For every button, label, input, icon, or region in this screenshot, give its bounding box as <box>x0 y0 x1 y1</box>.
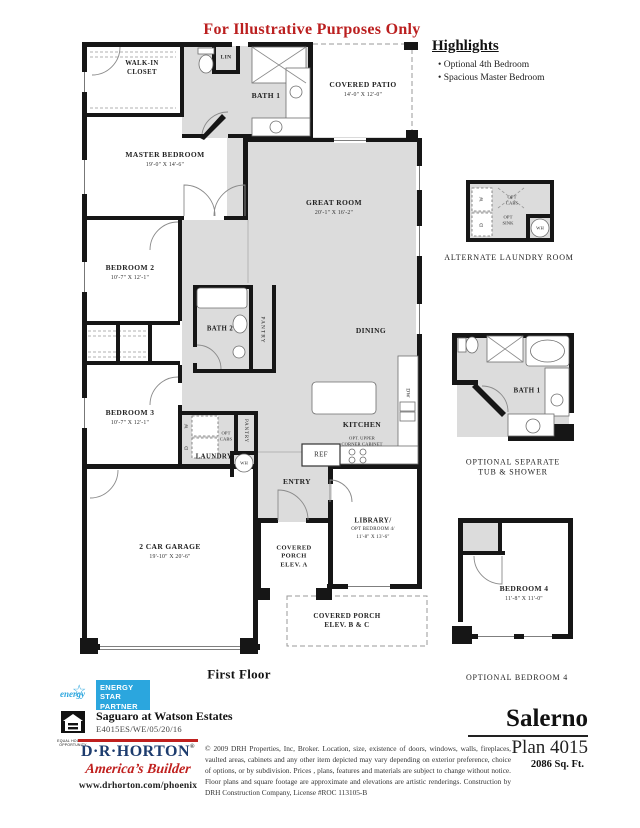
alt-laundry-dryer-label: D <box>480 223 486 227</box>
room-label-master-bedroom: MASTER BEDROOM <box>125 150 204 160</box>
room-label-bath-2: BATH 2 <box>207 326 233 335</box>
alt-laundry-washer-label: W <box>480 197 486 202</box>
opt-bedroom4-dims: 11'-8" X 11'-0" <box>505 596 543 604</box>
plan-identity: Salerno Plan 4015 2086 Sq. Ft. <box>468 705 588 770</box>
room-dims-garage: 19'-10" X 20'-6" <box>149 554 190 562</box>
floor-plan-sheet: For Illustrative Purposes Only Highlight… <box>0 0 640 828</box>
drhorton-logo: D·R·HORTON® America’s Builder www.drhort… <box>78 739 198 791</box>
room-dims-bedroom-2: 10'-7" X 12'-1" <box>111 275 149 283</box>
alt-laundry-opt-cabs-label: OPT CABS <box>506 195 518 206</box>
opt-bedroom4-room-label: BEDROOM 4 <box>500 584 549 594</box>
room-label-library-opt: OPT BEDROOM 4/ <box>351 527 395 533</box>
room-dims-master-bedroom: 19'-0" X 14'-6" <box>146 162 184 170</box>
community-name: Saguaro at Watson Estates <box>96 709 233 724</box>
alt-laundry-opt-sink-label: OPT SINK <box>502 215 513 226</box>
registered-mark: ® <box>190 744 195 750</box>
energy-star-line: STAR <box>100 692 150 701</box>
dryer-label: D <box>185 446 191 450</box>
opt-corner-cabinet-label: OPT. UPPER CORNER CABINET <box>341 436 382 447</box>
room-dims-library: 11'-8" X 13'-6" <box>356 535 389 541</box>
opt-cabs-label: OPT CABS <box>220 431 232 442</box>
dishwasher-label: DW <box>404 388 411 398</box>
room-label-covered-patio: COVERED PATIO <box>329 80 396 90</box>
highlights-list: Optional 4th Bedroom Spacious Master Bed… <box>438 60 627 83</box>
highlight-item: Optional 4th Bedroom <box>438 60 627 70</box>
room-label-laundry: LAUNDRY <box>196 454 233 463</box>
opt-bath-room-label: BATH 1 <box>514 386 541 395</box>
room-dims-bedroom-3: 10'-7" X 12'-1" <box>111 420 149 428</box>
room-label-linen: LIN <box>221 54 232 61</box>
room-label-kitchen: KITCHEN <box>343 420 381 430</box>
plan-number: Plan 4015 <box>468 738 588 759</box>
room-dims-covered-patio: 14'-0" X 12'-0" <box>344 92 382 100</box>
opt-bedroom4-caption: OPTIONAL BEDROOM 4 <box>466 673 568 683</box>
room-label-bath-1: BATH 1 <box>252 91 281 101</box>
room-label-entry: ENTRY <box>283 477 311 487</box>
highlight-item: Spacious Master Bedroom <box>438 73 627 83</box>
room-label-great-room: GREAT ROOM <box>306 198 362 208</box>
highlights-title: Highlights <box>432 38 627 55</box>
energy-star-swirl-icon: ☆ energy <box>58 680 96 710</box>
community-code: E4015ES/WE/05/20/16 <box>96 724 182 734</box>
drhorton-url[interactable]: www.drhorton.com/phoenix <box>78 781 198 791</box>
room-label-walk-in-closet: WALK-IN CLOSET <box>125 60 158 78</box>
room-label-covered-porch-a: COVERED PORCH ELEV. A <box>276 544 311 569</box>
alt-laundry-caption: ALTERNATE LAUNDRY ROOM <box>444 253 573 263</box>
drhorton-tagline: America’s Builder <box>77 762 199 778</box>
plan-name: Salerno <box>468 705 588 737</box>
room-label-covered-porch-bc: COVERED PORCH ELEV. B & C <box>313 612 380 630</box>
room-label-bedroom-3: BEDROOM 3 <box>106 408 155 418</box>
room-label-pantry-1: PANTRY <box>259 316 266 343</box>
energy-star-text: ENERGY STAR PARTNER <box>96 680 150 710</box>
room-label-dining: DINING <box>356 326 386 336</box>
highlights-panel: Highlights Optional 4th Bedroom Spacious… <box>432 38 627 86</box>
water-heater-label: WH <box>240 460 248 466</box>
opt-bath-caption: OPTIONAL SEPARATE TUB & SHOWER <box>466 458 560 479</box>
room-label-library: LIBRARY/ <box>354 516 391 525</box>
room-label-pantry-2: PANTRY <box>242 419 248 443</box>
legal-disclaimer: © 2009 DRH Properties, Inc, Broker. Loca… <box>205 744 511 799</box>
drhorton-name: D·R·HORTON® <box>78 744 198 761</box>
room-dims-great-room: 20'-1" X 16'-2" <box>315 210 353 218</box>
energy-script-label: energy <box>60 689 85 699</box>
drhorton-wordmark: D·R·HORTON <box>81 743 190 760</box>
alt-laundry-water-heater-label: WH <box>536 225 544 231</box>
drhorton-red-rule <box>78 739 198 742</box>
room-label-bedroom-2: BEDROOM 2 <box>106 263 155 273</box>
plan-square-footage: 2086 Sq. Ft. <box>468 759 588 770</box>
energy-star-line: ENERGY <box>100 683 150 692</box>
room-label-garage: 2 CAR GARAGE <box>139 542 200 552</box>
first-floor-title: First Floor <box>207 667 271 684</box>
refrigerator-label: REF <box>314 450 328 459</box>
disclaimer-title: For Illustrative Purposes Only <box>203 21 420 39</box>
washer-label: W <box>185 424 191 429</box>
energy-star-partner-logo: ☆ energy ENERGY STAR PARTNER <box>58 680 150 710</box>
equal-housing-house-icon <box>60 710 86 734</box>
